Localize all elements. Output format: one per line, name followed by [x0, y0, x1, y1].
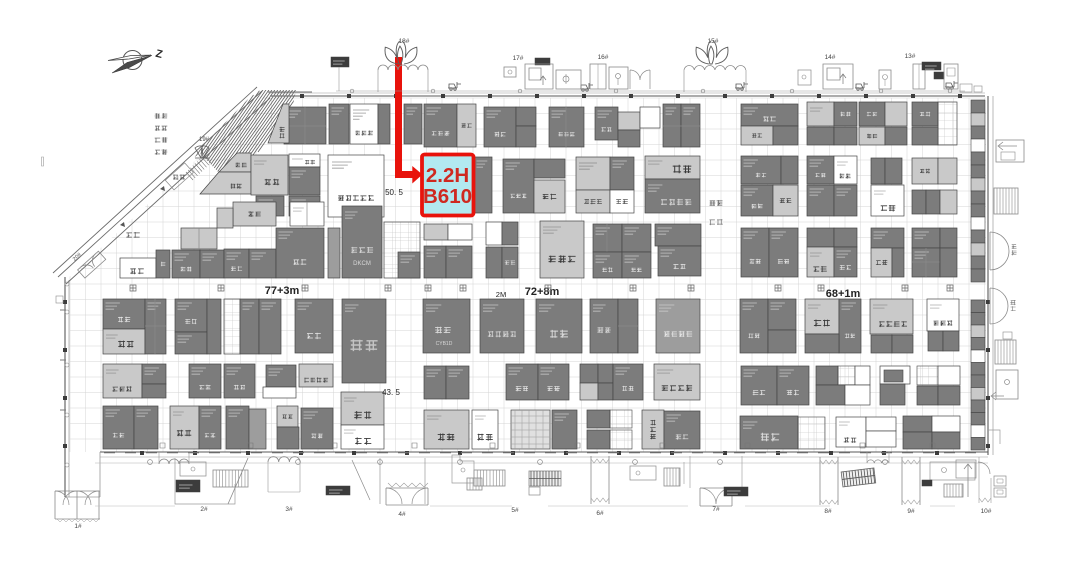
svg-text:13#: 13# — [905, 53, 916, 60]
svg-text:5#: 5# — [511, 507, 519, 514]
svg-text:14#: 14# — [825, 54, 836, 61]
svg-text:DKCM: DKCM — [353, 261, 371, 267]
svg-text:2#: 2# — [200, 506, 208, 513]
svg-text:72+8m: 72+8m — [525, 286, 560, 298]
svg-text:3#: 3# — [285, 506, 293, 513]
svg-text:4#: 4# — [398, 511, 406, 518]
svg-text:8#: 8# — [824, 508, 832, 515]
svg-text:50. 5: 50. 5 — [385, 188, 403, 197]
svg-text:43. 5: 43. 5 — [382, 388, 400, 397]
svg-text:17#: 17# — [513, 55, 524, 62]
svg-text:77+3m: 77+3m — [265, 285, 300, 297]
svg-text:B610: B610 — [423, 185, 472, 208]
svg-text:68+1m: 68+1m — [826, 288, 861, 300]
svg-text:7#: 7# — [712, 506, 720, 513]
svg-text:19#: 19# — [199, 137, 210, 143]
svg-text:9#: 9# — [907, 508, 915, 515]
svg-text:1#: 1# — [74, 523, 82, 530]
svg-text:2.2H: 2.2H — [426, 164, 469, 187]
svg-text:16#: 16# — [598, 54, 609, 61]
svg-text:6#: 6# — [596, 510, 604, 517]
svg-text:2M: 2M — [496, 290, 506, 299]
svg-text:CYB1D: CYB1D — [436, 341, 453, 347]
svg-text:10#: 10# — [981, 508, 992, 515]
